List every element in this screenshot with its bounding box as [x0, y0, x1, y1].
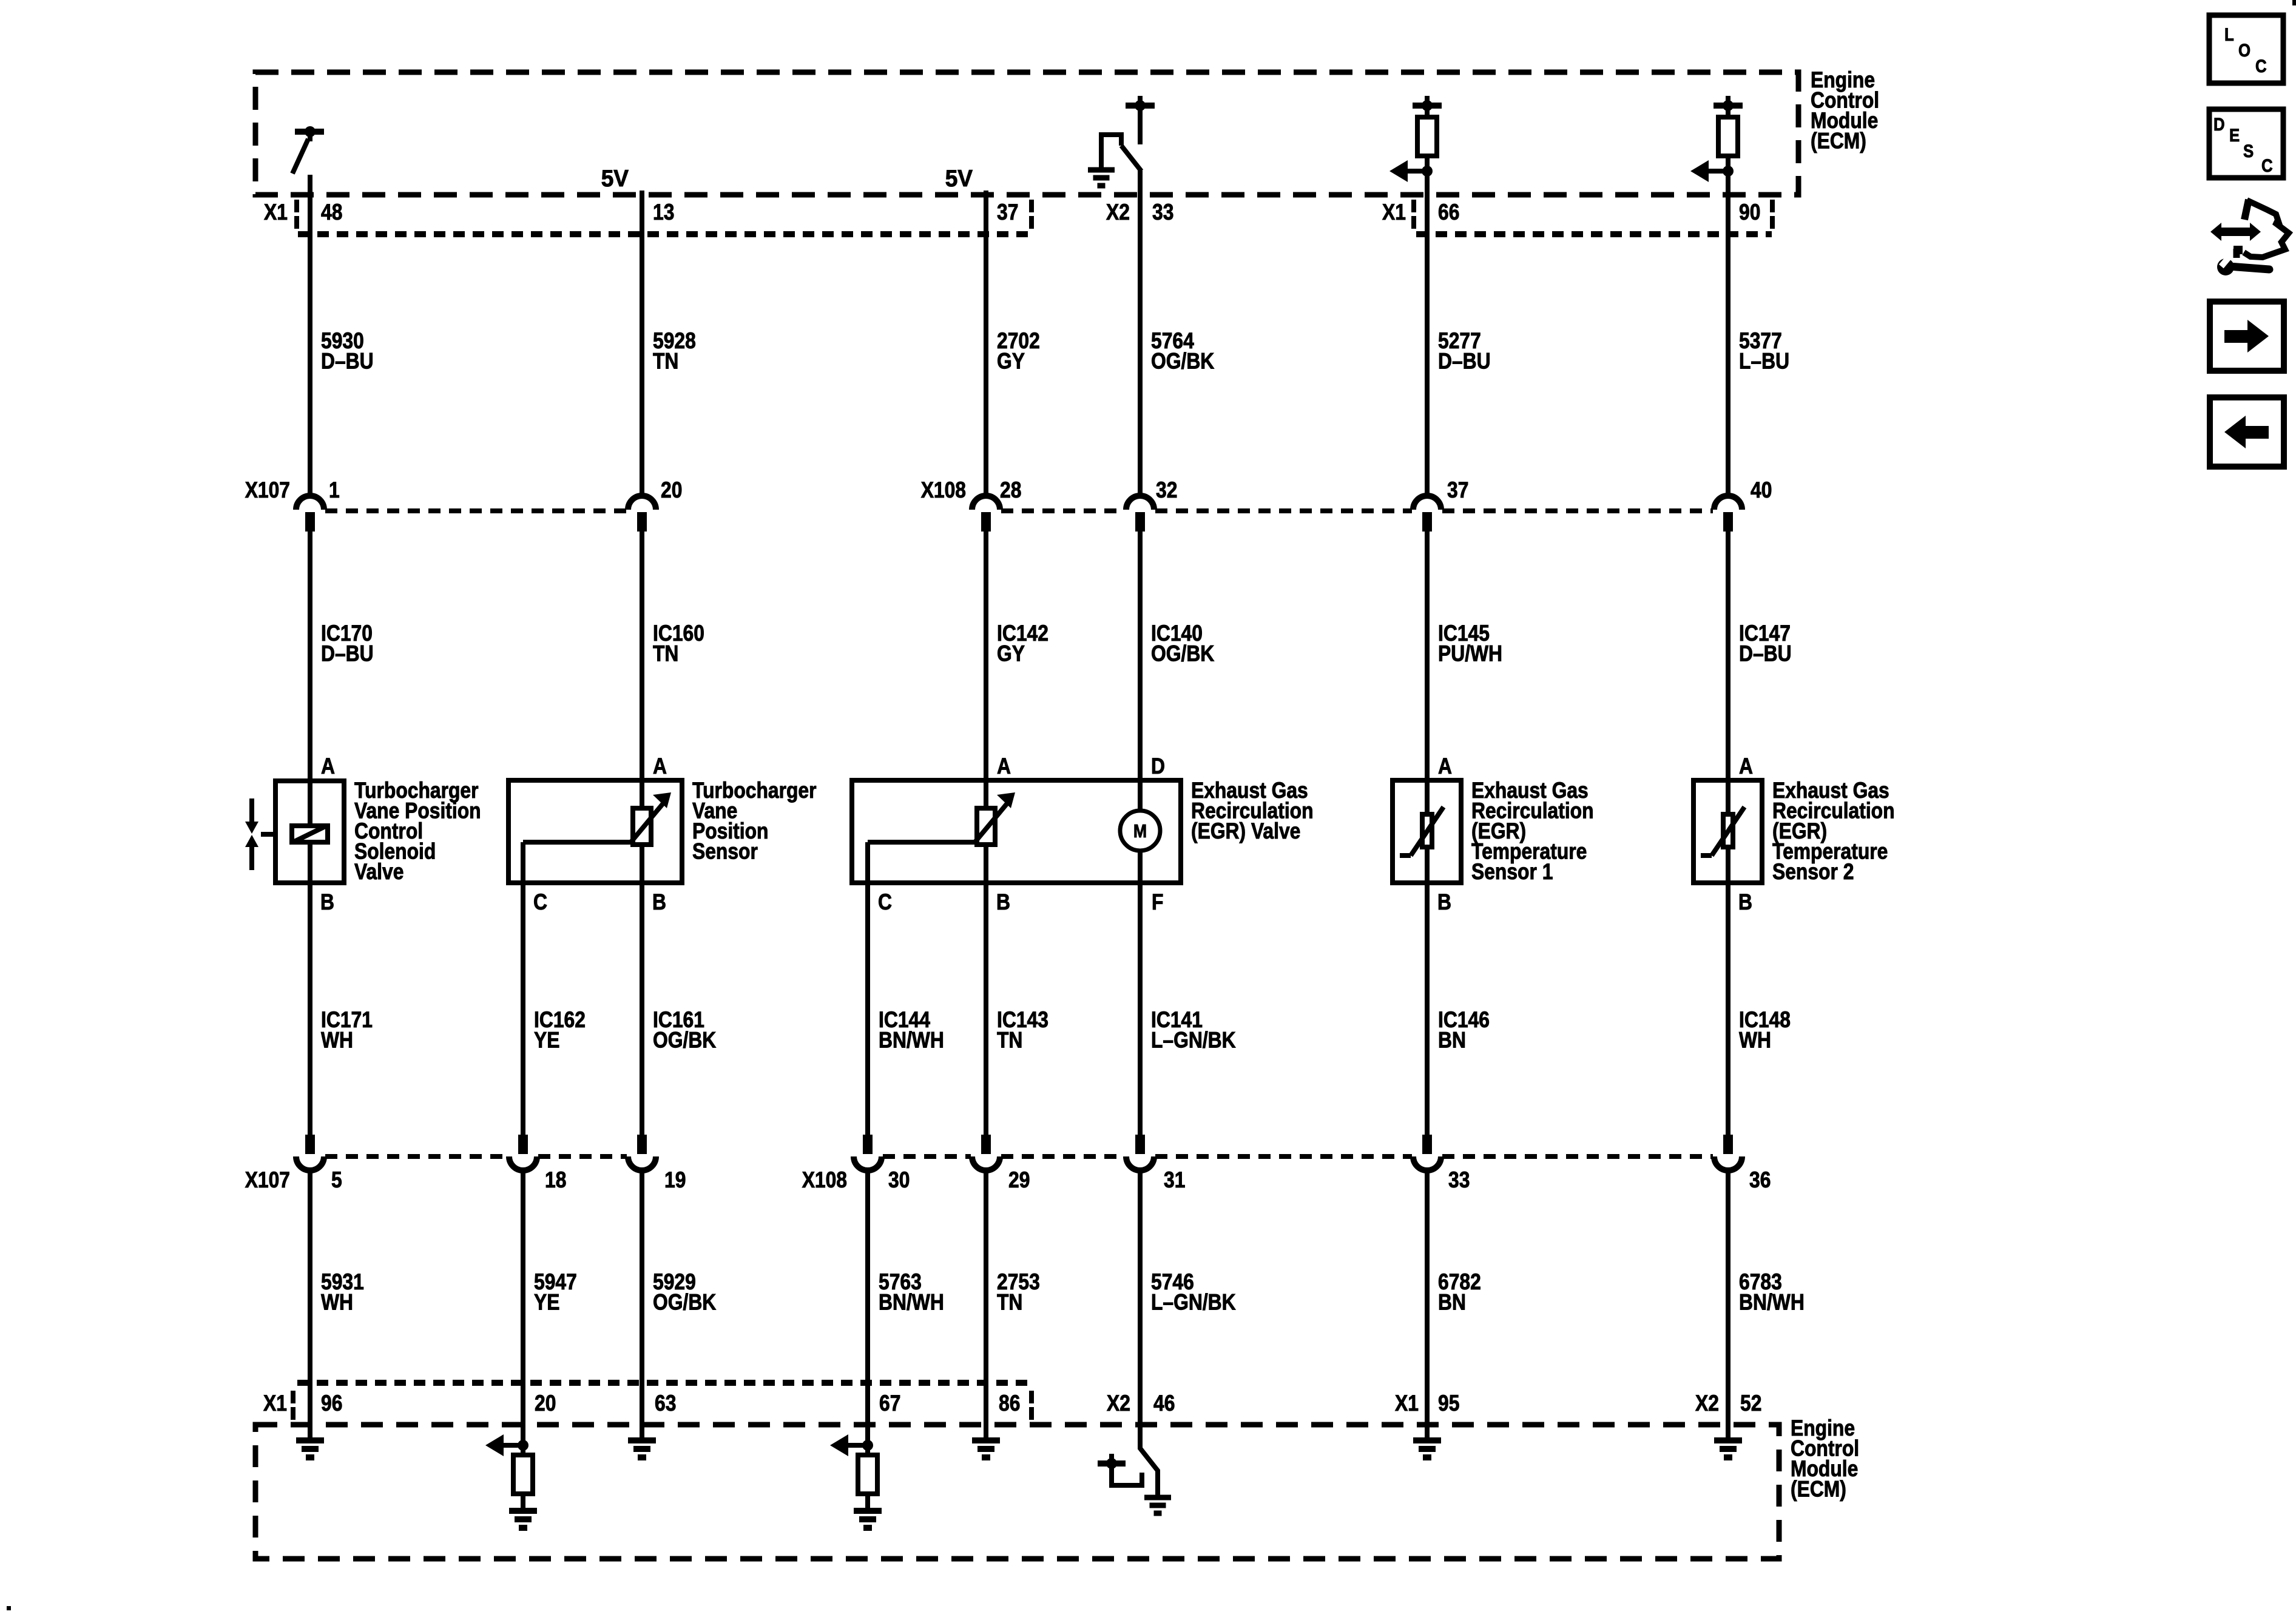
svg-text:GY: GY [997, 349, 1025, 374]
svg-text:E: E [2229, 125, 2240, 145]
svg-text:TN: TN [997, 1028, 1022, 1053]
svg-text:A: A [997, 754, 1011, 779]
svg-text:YE: YE [534, 1290, 559, 1315]
svg-text:WH: WH [1739, 1028, 1771, 1053]
svg-text:C: C [878, 890, 892, 915]
svg-text:F: F [1152, 890, 1163, 915]
svg-text:C: C [533, 890, 547, 915]
svg-text:D–BU: D–BU [321, 641, 374, 666]
svg-text:A: A [1739, 754, 1753, 779]
svg-text:A: A [653, 754, 667, 779]
svg-text:O: O [2238, 40, 2250, 60]
svg-text:D–BU: D–BU [321, 349, 374, 374]
svg-text:D: D [1151, 754, 1165, 779]
svg-text:L–GN/BK: L–GN/BK [1151, 1290, 1236, 1315]
svg-text:33: 33 [1448, 1168, 1470, 1193]
svg-text:67: 67 [879, 1391, 900, 1416]
svg-text:TN: TN [997, 1290, 1022, 1315]
svg-text:20: 20 [661, 478, 682, 503]
svg-text:BN/WH: BN/WH [879, 1028, 944, 1053]
svg-text:5V: 5V [601, 166, 629, 192]
svg-text:Sensor: Sensor [692, 839, 758, 864]
svg-text:Valve: Valve [354, 860, 403, 885]
svg-text:52: 52 [1740, 1391, 1761, 1416]
svg-text:33: 33 [1152, 200, 1173, 225]
svg-text:X2: X2 [1695, 1391, 1719, 1416]
svg-text:S: S [2243, 141, 2254, 161]
svg-text:A: A [1438, 754, 1452, 779]
svg-text:X108: X108 [802, 1168, 847, 1193]
svg-text:GY: GY [997, 641, 1025, 666]
svg-text:A: A [321, 754, 335, 779]
svg-text:1: 1 [329, 478, 340, 503]
svg-text:(EGR) Valve: (EGR) Valve [1191, 819, 1300, 844]
svg-text:B: B [996, 890, 1010, 915]
svg-text:(ECM): (ECM) [1811, 129, 1866, 154]
svg-text:D: D [2213, 114, 2225, 134]
svg-text:X107: X107 [245, 1168, 290, 1193]
svg-text:37: 37 [997, 200, 1018, 225]
svg-text:YE: YE [534, 1028, 559, 1053]
svg-text:Sensor 2: Sensor 2 [1772, 860, 1854, 885]
svg-text:X1: X1 [263, 1391, 287, 1416]
svg-text:X108: X108 [921, 478, 966, 503]
svg-text:Sensor 1: Sensor 1 [1471, 860, 1553, 885]
svg-text:L: L [2224, 24, 2234, 44]
svg-text:B: B [652, 890, 666, 915]
svg-text:C: C [2261, 155, 2273, 175]
svg-text:48: 48 [321, 200, 342, 225]
svg-text:37: 37 [1447, 478, 1468, 503]
svg-text:X2: X2 [1107, 1391, 1130, 1416]
svg-text:X107: X107 [245, 478, 290, 503]
svg-text:66: 66 [1438, 200, 1459, 225]
svg-text:WH: WH [321, 1290, 353, 1315]
svg-text:X2: X2 [1106, 200, 1130, 225]
svg-text:63: 63 [655, 1391, 676, 1416]
svg-text:BN/WH: BN/WH [879, 1290, 944, 1315]
svg-text:30: 30 [888, 1168, 910, 1193]
svg-text:B: B [1738, 890, 1752, 915]
svg-text:OG/BK: OG/BK [1151, 349, 1214, 374]
svg-text:90: 90 [1739, 200, 1760, 225]
svg-text:20: 20 [535, 1391, 556, 1416]
svg-text:18: 18 [545, 1168, 566, 1193]
svg-text:OG/BK: OG/BK [653, 1290, 716, 1315]
svg-text:D–BU: D–BU [1438, 349, 1491, 374]
svg-text:(ECM): (ECM) [1791, 1477, 1846, 1502]
svg-text:46: 46 [1153, 1391, 1175, 1416]
svg-text:BN: BN [1438, 1028, 1466, 1053]
svg-text:TN: TN [653, 349, 678, 374]
svg-text:X1: X1 [1395, 1391, 1419, 1416]
svg-text:L–BU: L–BU [1739, 349, 1789, 374]
svg-text:TN: TN [653, 641, 678, 666]
svg-text:29: 29 [1008, 1168, 1030, 1193]
svg-text:31: 31 [1164, 1168, 1185, 1193]
svg-text:5V: 5V [945, 166, 973, 192]
svg-text:19: 19 [664, 1168, 686, 1193]
svg-text:C: C [2255, 56, 2267, 76]
svg-text:28: 28 [1000, 478, 1021, 503]
svg-text:PU/WH: PU/WH [1438, 641, 1502, 666]
svg-text:X1: X1 [264, 200, 288, 225]
svg-text:40: 40 [1751, 478, 1772, 503]
svg-text:36: 36 [1749, 1168, 1771, 1193]
svg-text:OG/BK: OG/BK [653, 1028, 716, 1053]
svg-text:96: 96 [321, 1391, 342, 1416]
svg-text:D–BU: D–BU [1739, 641, 1792, 666]
svg-text:M: M [1133, 821, 1147, 842]
svg-text:WH: WH [321, 1028, 353, 1053]
svg-text:X1: X1 [1382, 200, 1406, 225]
svg-text:BN/WH: BN/WH [1739, 1290, 1805, 1315]
svg-text:95: 95 [1438, 1391, 1459, 1416]
svg-text:L–GN/BK: L–GN/BK [1151, 1028, 1236, 1053]
svg-text:13: 13 [653, 200, 674, 225]
svg-text:OG/BK: OG/BK [1151, 641, 1214, 666]
svg-text:B: B [1437, 890, 1451, 915]
svg-text:B: B [320, 890, 334, 915]
svg-text:32: 32 [1156, 478, 1177, 503]
svg-text:BN: BN [1438, 1290, 1466, 1315]
svg-text:5: 5 [331, 1168, 342, 1193]
svg-text:86: 86 [999, 1391, 1020, 1416]
